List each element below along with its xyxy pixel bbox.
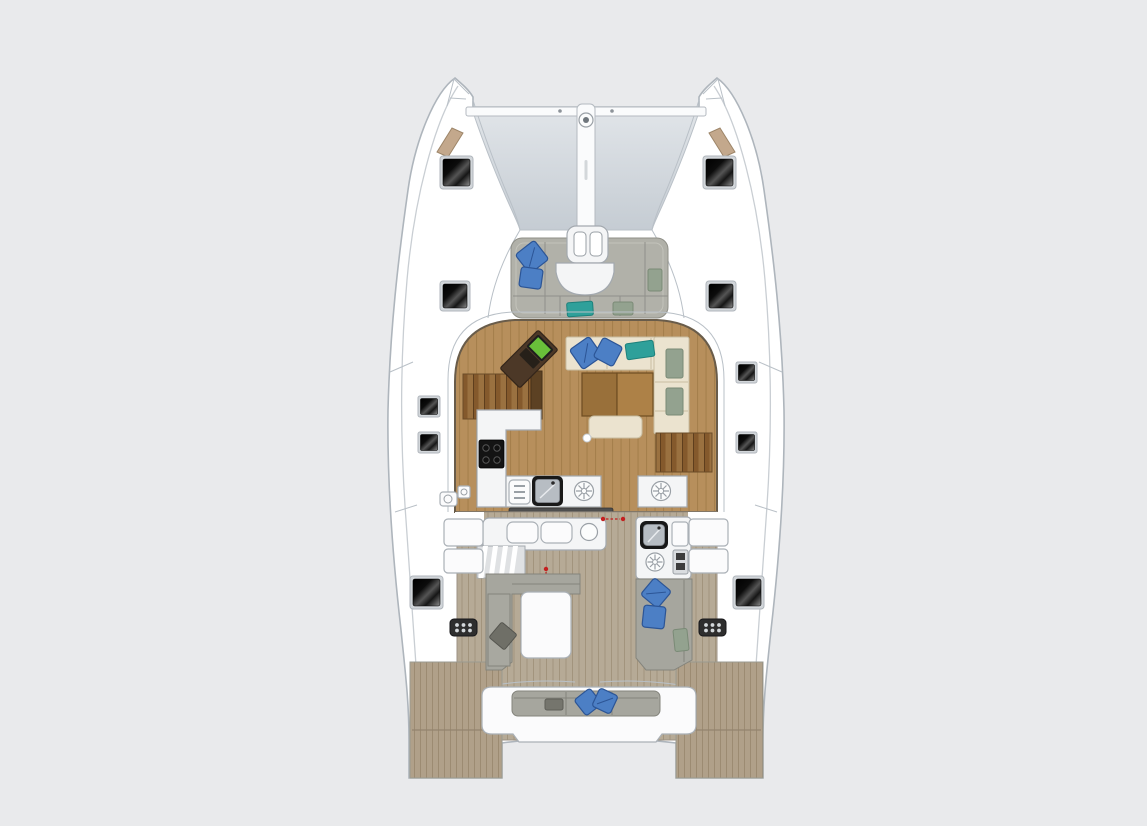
forward-pillow-teal [567, 301, 594, 317]
deck-plan-canvas [0, 0, 1147, 826]
sofa-headrest-2 [666, 388, 683, 415]
hatch-starboard-small-2 [736, 432, 757, 453]
starboard-sofa-armrest [673, 628, 689, 651]
galley-deck-vent [575, 482, 594, 501]
aft-bench [482, 687, 696, 742]
outdoor-galley-controls [673, 550, 688, 574]
sofa-headrest-1 [666, 349, 683, 378]
beam-fitting-dot [610, 109, 614, 113]
beam-fitting-dot [558, 109, 562, 113]
forward-pillow-blue-2 [519, 267, 544, 290]
starboard-companionway-stairs [656, 433, 712, 472]
forward-armrest-right [648, 269, 662, 291]
dinette-bench-cushion [589, 416, 642, 438]
starboard-deck-vent [652, 482, 671, 501]
outdoor-galley-lid [672, 522, 688, 546]
hatch-starboard-mid [706, 281, 736, 311]
side-boarding-steps [477, 546, 525, 578]
forward-saloon-door [567, 226, 608, 263]
hatch-port-small-1 [418, 396, 440, 417]
hatch-starboard-small-1 [736, 362, 757, 383]
starboard-cockpit-sofa [636, 578, 692, 670]
dinette-table [582, 373, 653, 416]
boat-floorplan-svg [0, 0, 1147, 826]
hatch-port-aft [410, 576, 443, 609]
beam-slot [585, 160, 588, 180]
forward-cockpit-lounge [488, 226, 684, 318]
saloon [448, 312, 724, 514]
galley-faucet-unit [509, 480, 530, 504]
port-vent-grille [450, 619, 477, 636]
forward-armrest-bottom [613, 302, 633, 315]
hatch-starboard-fwd [703, 156, 736, 189]
outdoor-burner [646, 553, 664, 571]
hatch-port-small-2 [418, 432, 440, 453]
saloon-pillow-teal [625, 340, 655, 360]
hatch-port-fwd [440, 156, 473, 189]
side-deck-latch [440, 492, 457, 506]
cooktop [479, 440, 504, 468]
starboard-pillow-blue-2 [642, 605, 666, 629]
starboard-vent-grille [699, 619, 726, 636]
hatch-starboard-aft [733, 576, 764, 609]
side-locker-latch [458, 486, 470, 498]
forestay-pin [583, 117, 589, 123]
aft-bench-armrest [545, 699, 563, 710]
galley-sink [532, 476, 563, 506]
hatch-port-mid [440, 281, 470, 311]
table-leg-dot [583, 434, 591, 442]
outdoor-galley [636, 517, 691, 579]
cockpit-table [521, 592, 571, 658]
wet-bar [483, 518, 606, 550]
